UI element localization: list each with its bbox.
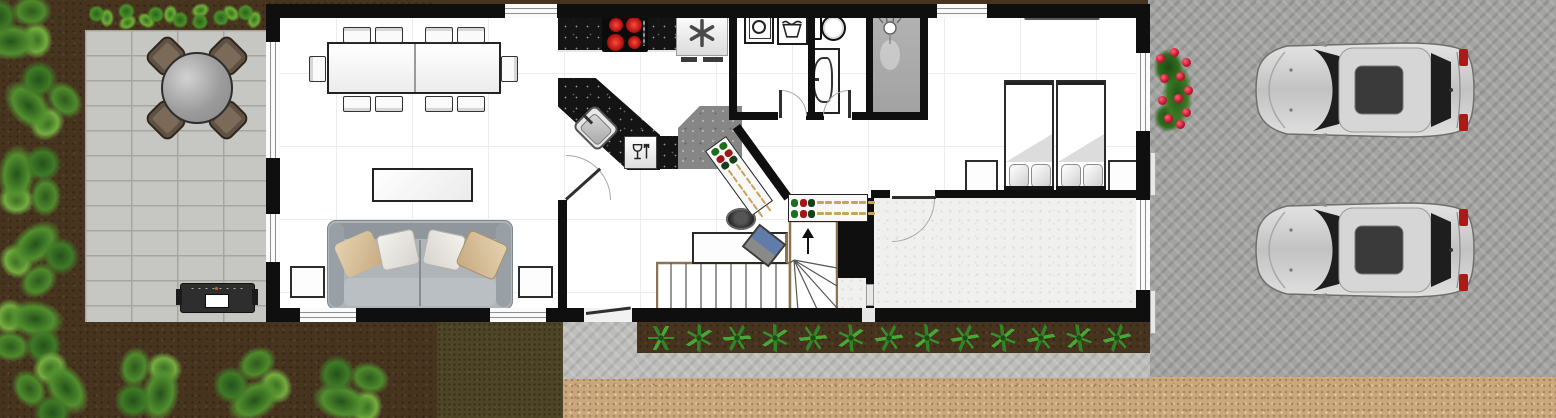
window <box>266 214 280 262</box>
rose-flower <box>1160 74 1169 83</box>
dishwasher <box>624 136 657 169</box>
wine-bottle-neck <box>760 197 766 204</box>
wine-bottle <box>791 199 798 207</box>
rose-flower <box>1176 72 1185 81</box>
taillight <box>1459 209 1468 226</box>
bed-footboard <box>1058 82 1104 85</box>
storage-side-door <box>866 284 874 306</box>
taillight <box>1459 274 1468 291</box>
front-walkway <box>563 322 639 379</box>
burner <box>628 36 641 49</box>
dining-chair <box>375 96 403 112</box>
wall-utility-wc <box>808 18 815 112</box>
shower-floor <box>873 18 920 112</box>
wine-bottle-neck <box>842 201 849 204</box>
wine-bottle-neck <box>735 163 741 170</box>
freezer-asterisk-icon <box>687 18 717 48</box>
washer-drum <box>752 20 766 34</box>
rose-flower <box>1158 96 1167 105</box>
wall-bath-bottom <box>852 112 928 120</box>
nightstand <box>965 160 998 192</box>
wine-bottle-neck <box>859 201 866 204</box>
wall-bath-bottom <box>806 112 824 120</box>
window <box>490 308 546 322</box>
wine-bottle-neck <box>727 169 733 176</box>
wine-bottle-neck <box>859 212 866 215</box>
mulch-bed <box>437 322 563 418</box>
wine-bottle-neck <box>747 196 753 203</box>
dining-chair <box>425 27 453 43</box>
single-bed <box>1056 80 1106 192</box>
cooktop-controls <box>643 20 645 46</box>
bed-pillow <box>1031 164 1051 188</box>
window <box>937 4 987 18</box>
window <box>300 308 356 322</box>
outer-wall-bottom <box>632 308 877 322</box>
window <box>505 4 557 18</box>
freezer-handle <box>681 57 697 62</box>
coffee-table <box>372 168 473 202</box>
kitchen-counter-mid <box>657 136 679 169</box>
door-storage-room <box>892 196 936 199</box>
wall-bath-bottom <box>737 112 778 120</box>
outer-wall-top <box>266 4 1150 18</box>
bbq-side-shelf <box>176 289 182 305</box>
freezer <box>676 12 728 56</box>
front-path <box>637 353 1150 378</box>
dining-chair <box>343 27 371 43</box>
wine-bottle-neck <box>732 176 738 183</box>
wall-wc-shower <box>866 18 873 112</box>
rose-flower <box>1184 86 1193 95</box>
dining-chair <box>457 27 485 43</box>
wine-rack-row <box>791 209 865 218</box>
patio-table <box>161 52 233 124</box>
glassware-icon <box>627 139 653 165</box>
wine-bottle-neck <box>740 170 746 177</box>
dining-chair-end <box>309 56 326 82</box>
bbq-side-shelf <box>252 289 258 305</box>
table-divider <box>414 44 416 92</box>
under-stair-closet <box>838 222 866 278</box>
wall-kitchen-utility <box>729 18 737 120</box>
wine-bottle-neck <box>825 201 832 204</box>
door-utility <box>779 90 782 118</box>
wine-bottle-neck <box>755 191 761 198</box>
wine-rack-row <box>791 198 865 207</box>
wine-bottle-neck <box>817 212 824 215</box>
bbq-ignition-light <box>215 287 218 290</box>
bed-pillow <box>1009 164 1029 188</box>
wine-bottle-neck <box>851 201 858 204</box>
wall-bedroom-bottom <box>871 190 890 198</box>
rose-flower <box>1174 94 1183 103</box>
rose-flower <box>1182 58 1191 67</box>
flowerbed-plant <box>648 326 674 350</box>
outer-wall-bottom <box>877 308 1150 322</box>
door-wc <box>848 90 851 118</box>
back-door-gap <box>862 308 875 322</box>
wine-bottle <box>808 210 815 218</box>
wine-bottle-neck <box>868 212 875 215</box>
dining-chair <box>425 96 453 112</box>
burner <box>626 17 642 33</box>
sofa <box>327 220 513 310</box>
bed-footboard <box>1006 82 1052 85</box>
bed-pillow <box>1061 164 1081 188</box>
laundry-basin-icon <box>779 16 805 42</box>
toilet-bowl <box>821 15 846 41</box>
wine-bottle-neck <box>752 203 758 210</box>
rose-flower <box>1176 120 1185 129</box>
sunroof <box>1355 226 1403 274</box>
dining-table <box>327 42 501 94</box>
bbq-tray <box>205 294 229 308</box>
gravel-strip <box>563 377 1556 418</box>
wine-bottle-neck <box>868 201 875 204</box>
window <box>1136 200 1150 290</box>
side-gate-panel <box>1150 290 1156 334</box>
single-bed <box>1004 80 1054 192</box>
dining-chair <box>457 96 485 112</box>
sunroof <box>1355 66 1403 114</box>
dining-chair-end <box>501 56 518 82</box>
bbq-grill <box>180 283 255 313</box>
wine-rack-horizontal <box>788 194 868 222</box>
burner <box>609 18 623 32</box>
rear-window <box>1431 53 1451 127</box>
rear-window <box>1431 213 1451 287</box>
side-table <box>518 266 553 298</box>
wine-bottle-neck <box>750 184 756 191</box>
wall-shower-right <box>920 18 928 112</box>
wine-bottle-neck <box>842 212 849 215</box>
wine-bottle-neck <box>737 183 743 190</box>
side-gate-panel <box>1150 152 1156 196</box>
rose-flower <box>1182 108 1191 117</box>
freezer-handle <box>703 57 723 62</box>
window <box>1136 53 1150 131</box>
floor-plan <box>0 0 1556 418</box>
wine-bottle <box>791 210 798 218</box>
cooktop <box>602 14 648 52</box>
duvet-fold <box>1006 134 1052 162</box>
dining-chair <box>375 27 403 43</box>
duvet-fold <box>1058 134 1104 162</box>
bed-pillow <box>1083 164 1103 188</box>
taillight <box>1459 49 1468 66</box>
sofa-pillow-white <box>376 228 421 271</box>
window <box>266 42 280 158</box>
wine-bottle-neck <box>825 212 832 215</box>
wine-bottle <box>808 199 815 207</box>
rose-flower <box>1156 54 1165 63</box>
taillight <box>1459 114 1468 131</box>
wine-bottle-neck <box>742 190 748 197</box>
wine-bottle-neck <box>745 177 751 184</box>
dining-chair <box>343 96 371 112</box>
car <box>1253 40 1481 140</box>
rose-bush <box>1150 44 1196 136</box>
burner <box>607 34 624 51</box>
wine-bottle-neck <box>834 201 841 204</box>
wine-bottle-neck <box>851 212 858 215</box>
wine-bottle-neck <box>817 201 824 204</box>
wine-bottle <box>800 199 807 207</box>
bbq-knobs <box>189 287 247 290</box>
wine-bottle-neck <box>834 212 841 215</box>
car <box>1253 200 1481 300</box>
wall-living-stair <box>558 200 567 308</box>
side-table <box>290 266 325 298</box>
rose-flower <box>1164 114 1173 123</box>
rose-flower <box>1170 48 1179 57</box>
wall-bedroom-bottom <box>935 190 1136 198</box>
sofa-seat-split <box>419 240 421 306</box>
wine-bottle <box>800 210 807 218</box>
